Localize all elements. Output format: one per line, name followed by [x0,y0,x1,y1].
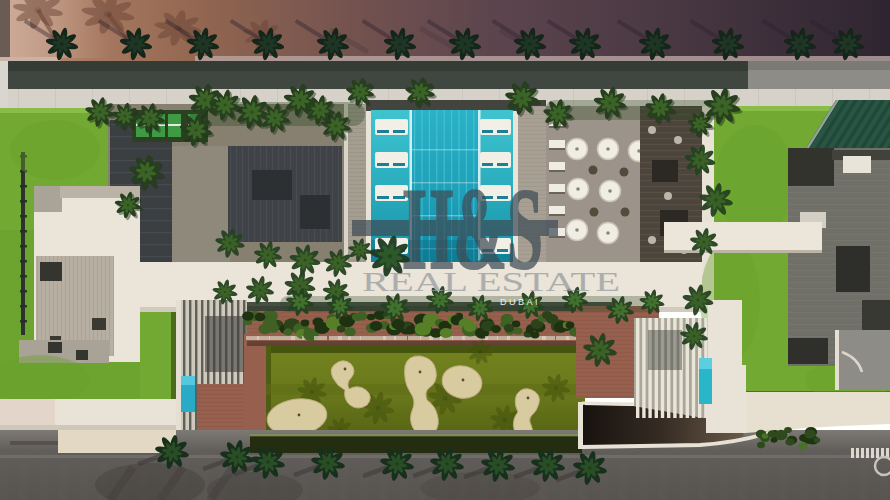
svg-text:DUBAI: DUBAI [500,297,540,307]
svg-text:REAL ESTATE: REAL ESTATE [362,267,620,297]
